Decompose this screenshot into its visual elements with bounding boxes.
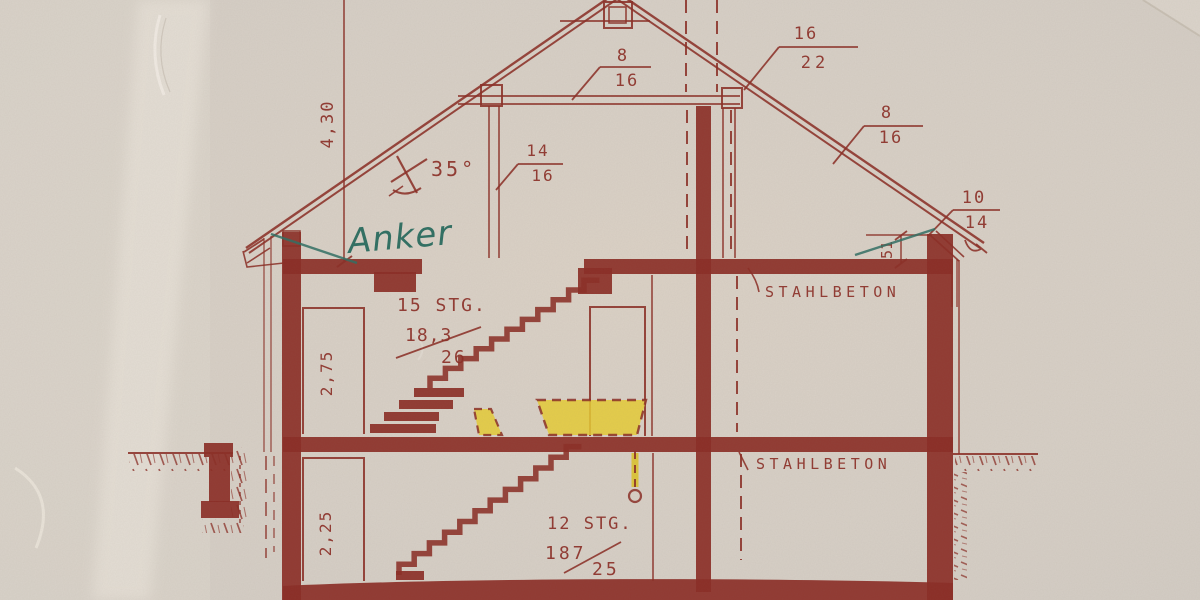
paper-grain	[0, 0, 1200, 600]
blueprint-photo: 4,30 35° 8 16 16 22 8 16 10 14 14 16	[0, 0, 1200, 600]
house-section-drawing: 4,30 35° 8 16 16 22 8 16 10 14 14 16	[0, 0, 1200, 600]
